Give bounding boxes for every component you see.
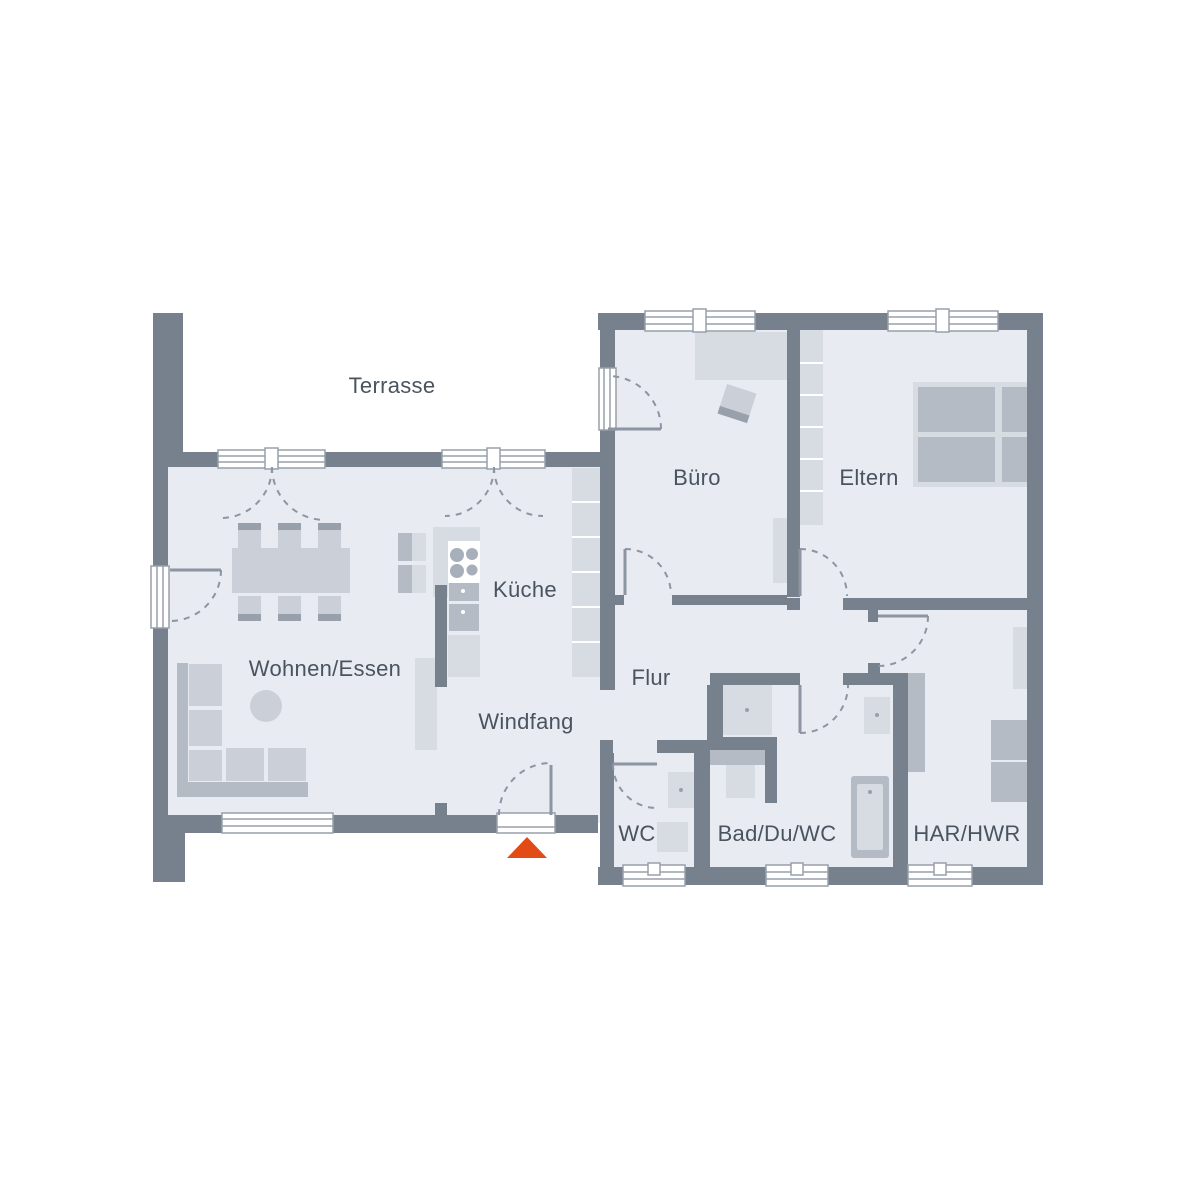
room-label-wohnen-essen: Wohnen/Essen (249, 656, 401, 681)
room-label-kueche: Küche (493, 577, 557, 602)
installation-shaft (907, 673, 925, 772)
wall-segment (765, 750, 777, 803)
vanity-counter (710, 750, 765, 765)
wall-segment (787, 598, 800, 610)
room-label-flur: Flur (631, 665, 670, 690)
pillow (1002, 387, 1028, 432)
burner (450, 564, 464, 578)
chair-back (278, 523, 301, 530)
stool-light (412, 565, 426, 593)
sideboard (415, 658, 437, 750)
window (222, 813, 333, 833)
sofa-back (177, 782, 308, 797)
sofa-cushion (188, 709, 223, 747)
dryer (991, 762, 1028, 802)
washing-machine (991, 720, 1028, 760)
entrance-door-threshold (497, 813, 555, 833)
room-label-windfang: Windfang (478, 709, 573, 734)
wall-segment (672, 595, 787, 605)
sofa-cushion (188, 663, 223, 707)
window-center-post (791, 863, 803, 875)
burner (467, 565, 478, 576)
window-center-post (693, 309, 706, 332)
chair-back (278, 614, 301, 621)
stool-light (412, 533, 426, 561)
desk (695, 332, 787, 380)
floorplan-svg: Terrasse Büro Eltern Küche Wohnen/Essen … (0, 0, 1200, 1200)
wall-segment (710, 673, 800, 685)
pillow (1002, 437, 1028, 482)
mattress (918, 387, 995, 432)
kitchen-fridge (448, 527, 480, 541)
room-label-wc: WC (618, 821, 655, 846)
wall-segment (600, 740, 613, 753)
window (599, 368, 616, 430)
wall-segment (868, 663, 880, 673)
cooktop-panel (448, 541, 480, 583)
dining-table (232, 548, 350, 593)
kitchen-sink (449, 604, 479, 631)
coffee-table (250, 690, 282, 722)
buero-shelf (773, 518, 787, 583)
sofa-cushion (225, 747, 265, 782)
chair-back (238, 523, 261, 530)
window-center-post (648, 863, 660, 875)
wall-segment (600, 753, 614, 867)
room-label-terrasse: Terrasse (349, 373, 436, 398)
wall-segment (153, 455, 168, 815)
room-label-har-hwr: HAR/HWR (913, 821, 1020, 846)
wall-segment (435, 803, 447, 815)
stool-dark (398, 565, 412, 593)
sofa-cushion (188, 749, 223, 782)
vanity-sink (726, 765, 755, 798)
wall-segment (435, 585, 447, 687)
wall-segment (615, 595, 624, 605)
wall-segment (843, 598, 1040, 610)
window-center-post (265, 448, 278, 469)
window-center-post (487, 448, 500, 469)
sofa-back (177, 663, 188, 797)
har-cabinet (1013, 627, 1029, 689)
wall-segment (707, 737, 777, 750)
window-center-post (934, 863, 946, 875)
kitchen-base-cabinet (448, 635, 480, 677)
wall-segment (694, 740, 710, 867)
burner (466, 548, 478, 560)
burner (450, 548, 464, 562)
room-label-buero: Büro (673, 465, 721, 490)
wall-segment (707, 685, 723, 737)
entrance-arrow-icon (507, 837, 547, 858)
mattress (918, 437, 995, 482)
window (151, 566, 169, 628)
chair-back (238, 614, 261, 621)
wall-segment (868, 610, 878, 622)
wall-segment (787, 330, 800, 597)
stool-dark (398, 533, 412, 561)
room-label-eltern: Eltern (839, 465, 898, 490)
room-label-bad: Bad/Du/WC (718, 821, 837, 846)
sofa-cushion (267, 747, 307, 782)
wall-segment (893, 673, 908, 867)
window-center-post (936, 309, 949, 332)
wall-segment (153, 313, 183, 455)
chair-back (318, 523, 341, 530)
chair-back (318, 614, 341, 621)
toilet (657, 822, 688, 852)
